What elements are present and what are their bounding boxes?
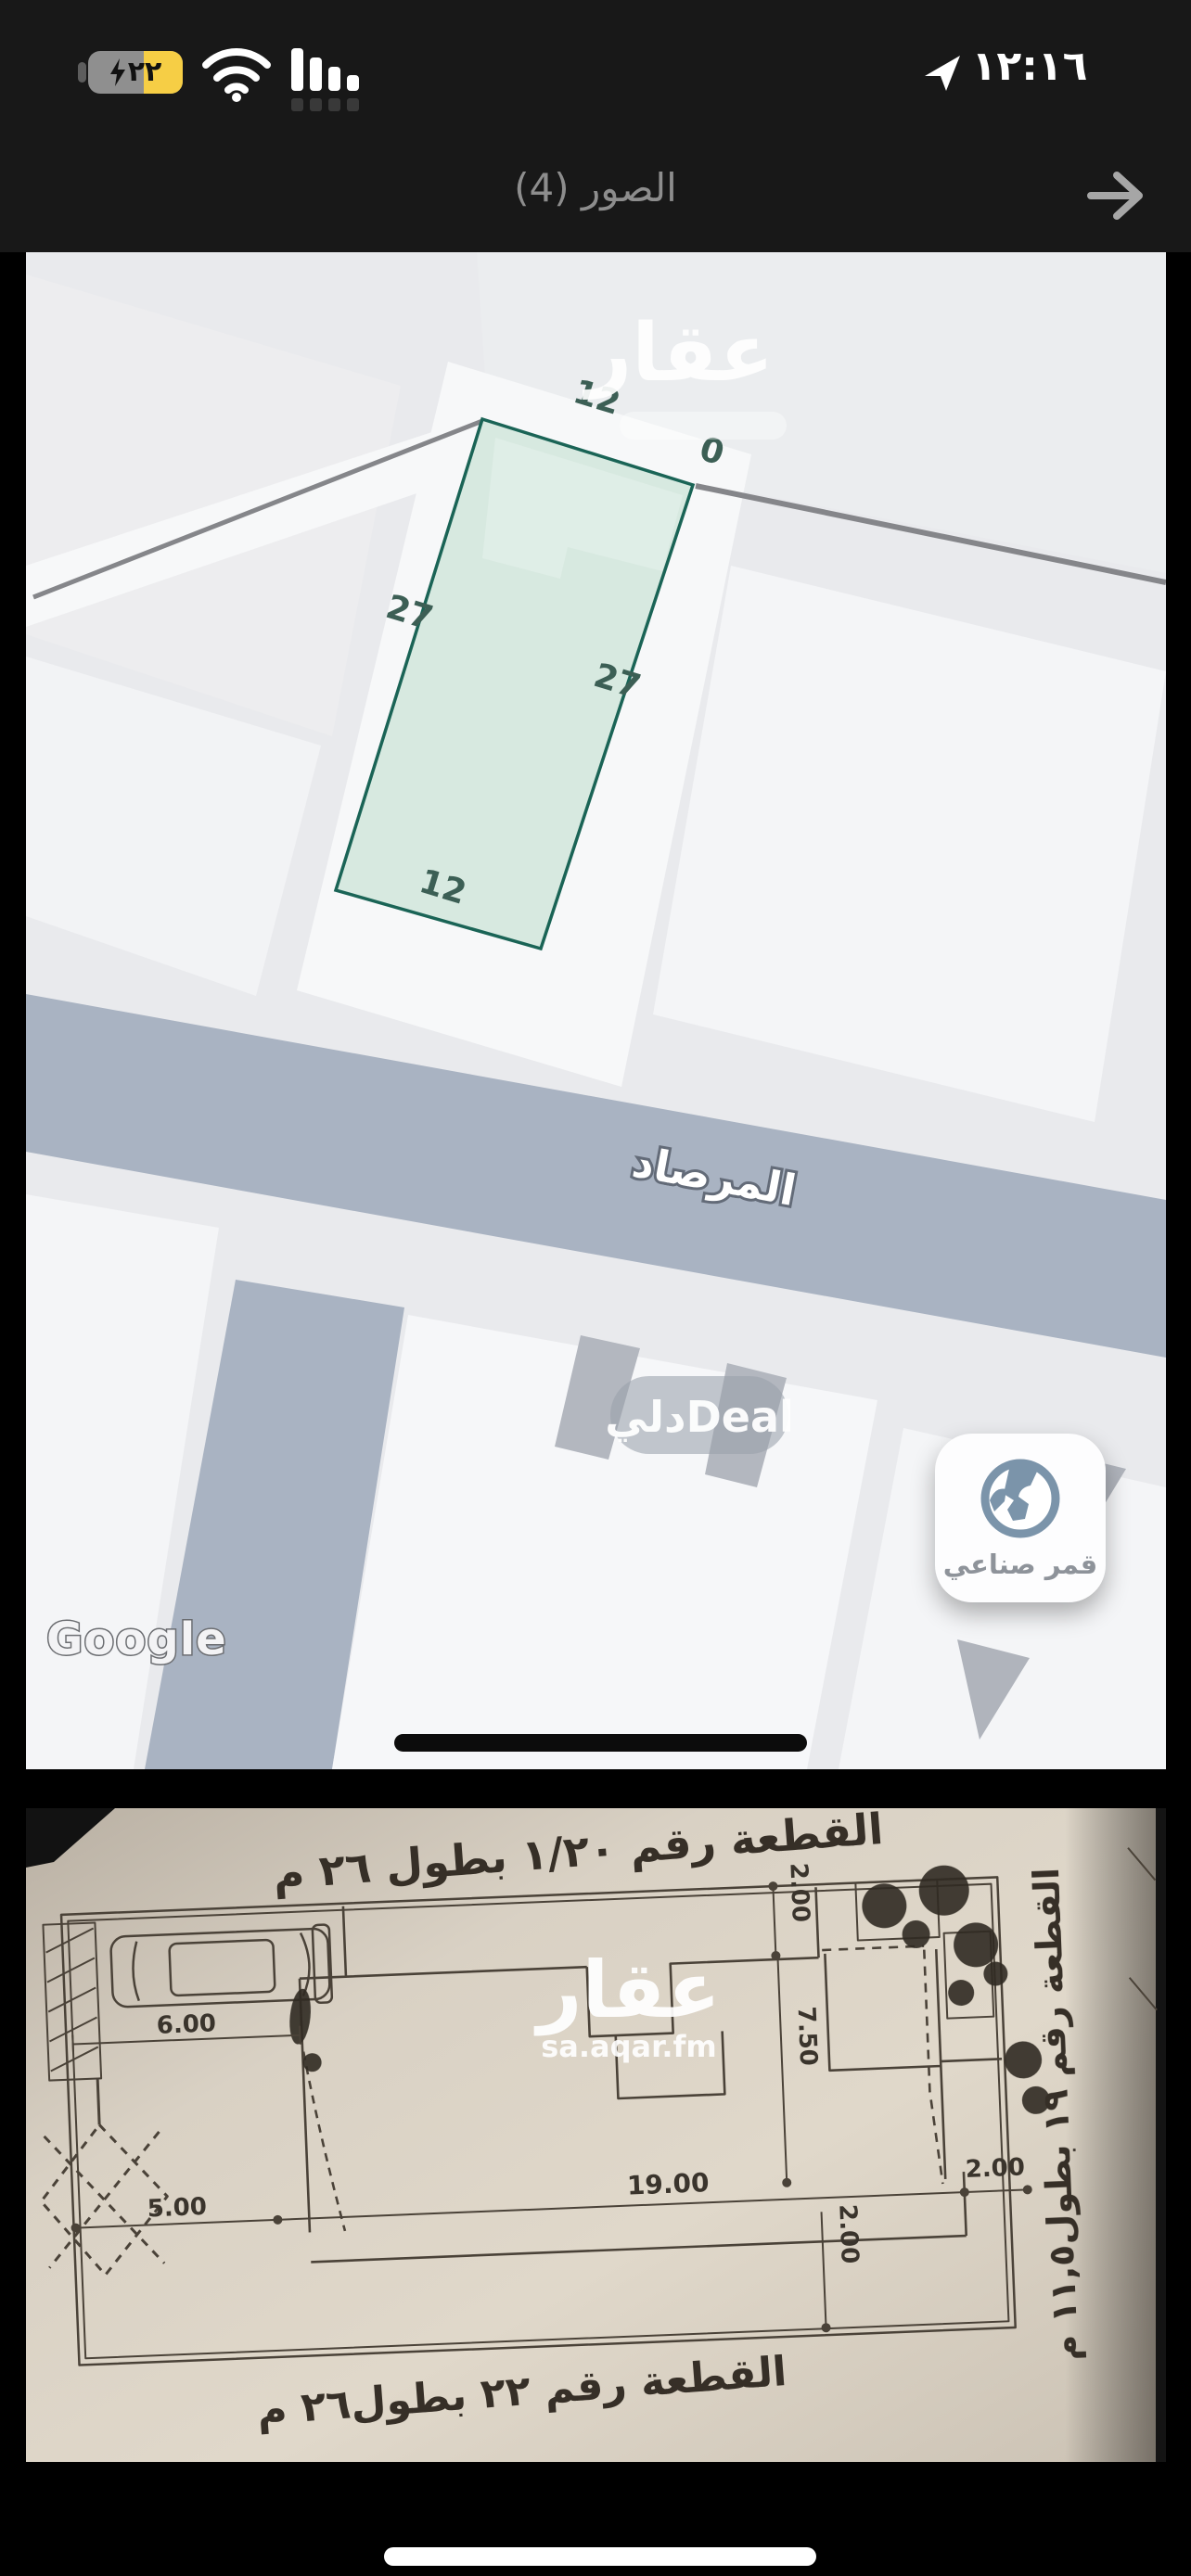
satellite-button-label: قمر صناعي: [943, 1549, 1097, 1580]
dim-2a: 2.00: [965, 2153, 1025, 2184]
battery-cap: [78, 62, 86, 83]
top-chrome: [0, 0, 1191, 252]
satellite-toggle-button[interactable]: قمر صناعي: [935, 1434, 1106, 1602]
floorplan-canvas: 6.00 5.00 19.00 2.00 2.00 7.50 2.00 القط…: [26, 1808, 1166, 2462]
arrow-right-icon: [1091, 175, 1139, 216]
google-logo: Google: [46, 1613, 227, 1665]
battery-percent: ٢٢: [109, 51, 162, 94]
dim-2b: 2.00: [784, 1862, 814, 1922]
watermark-aqar-sub: [620, 412, 787, 440]
dim-6: 6.00: [156, 2009, 216, 2040]
status-time: ١٢:١٦: [965, 43, 1095, 90]
charging-bolt-icon: [109, 58, 126, 86]
dim-2c: 2.00: [833, 2203, 864, 2264]
globe-icon: [978, 1456, 1063, 1541]
back-button[interactable]: [1076, 163, 1154, 228]
plan-watermark-url: sa.aqar.fm: [541, 2029, 717, 2064]
battery-percent-value: ٢٢: [128, 51, 162, 94]
watermark-aqar: عقار: [583, 307, 774, 400]
plan-watermark-text: عقار: [533, 1945, 721, 2036]
home-indicator[interactable]: [384, 2547, 816, 2566]
location-arrow-icon: [923, 54, 962, 93]
floorplan-photo[interactable]: 6.00 5.00 19.00 2.00 2.00 7.50 2.00 القط…: [26, 1808, 1166, 2462]
watermark-deal-text: دليDeal: [605, 1392, 794, 1442]
cellular-bars-icon: [289, 46, 364, 113]
photo-edge-shadow: [1065, 1808, 1166, 2462]
map-photo[interactable]: 12 0 27 27 12 المرصاد عقار دليDeal Googl…: [26, 252, 1166, 1769]
page-title: الصور (4): [0, 165, 1191, 210]
carousel-scrubber[interactable]: [394, 1734, 807, 1752]
wifi-icon: [200, 48, 273, 102]
watermark-deal: دليDeal: [605, 1376, 794, 1454]
dim-19: 19.00: [626, 2167, 710, 2201]
dim-5: 5.00: [147, 2193, 207, 2224]
battery-icon: ٢٢: [88, 51, 183, 94]
photo-edge-strip: [1156, 1808, 1166, 2462]
dim-7-5: 7.50: [792, 2006, 823, 2066]
plan-watermark: عقار sa.aqar.fm: [533, 1945, 721, 2064]
